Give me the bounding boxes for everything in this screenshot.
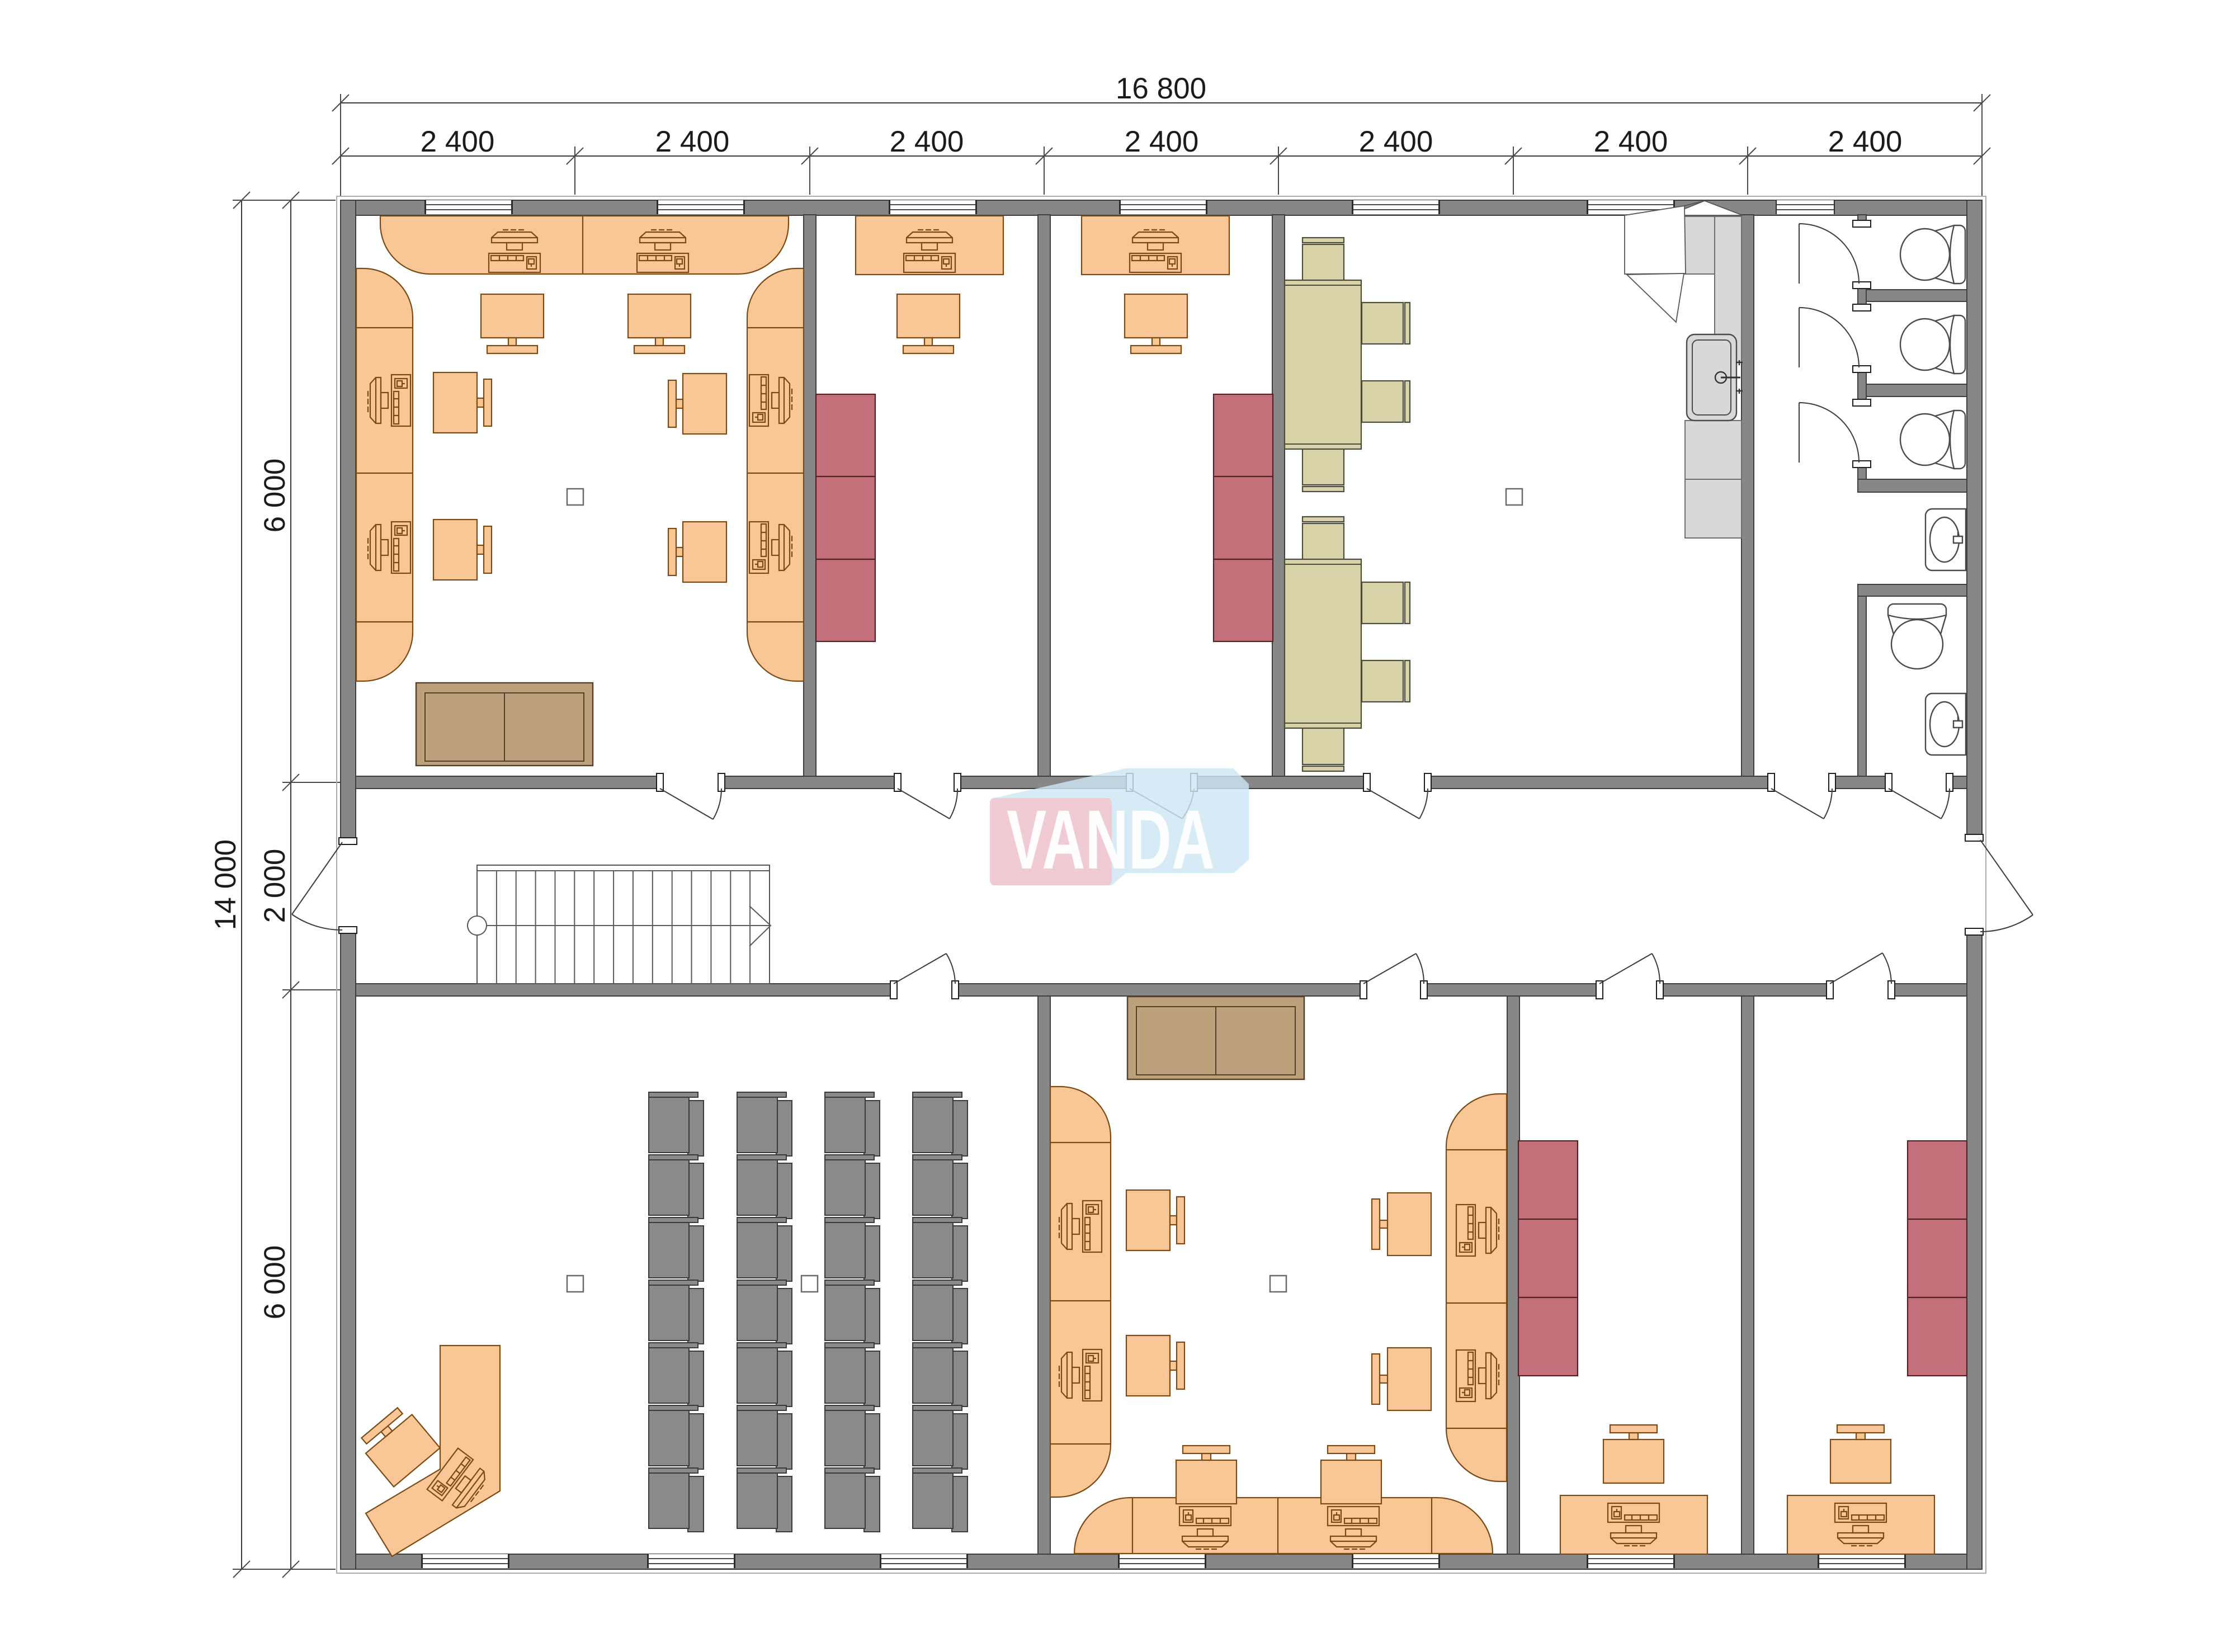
svg-text:6 000: 6 000: [258, 1245, 291, 1320]
svg-text:2 400: 2 400: [890, 125, 964, 158]
svg-text:16 800: 16 800: [1116, 72, 1206, 105]
svg-text:2 400: 2 400: [655, 125, 730, 158]
svg-text:2 400: 2 400: [421, 125, 495, 158]
svg-text:6 000: 6 000: [258, 459, 291, 533]
svg-text:2 400: 2 400: [1125, 125, 1199, 158]
svg-text:VANDA: VANDA: [1007, 792, 1215, 886]
svg-text:2 000: 2 000: [258, 849, 291, 923]
svg-text:2 400: 2 400: [1594, 125, 1668, 158]
svg-text:2 400: 2 400: [1828, 125, 1903, 158]
svg-text:2 400: 2 400: [1359, 125, 1433, 158]
svg-text:14 000: 14 000: [209, 839, 242, 930]
